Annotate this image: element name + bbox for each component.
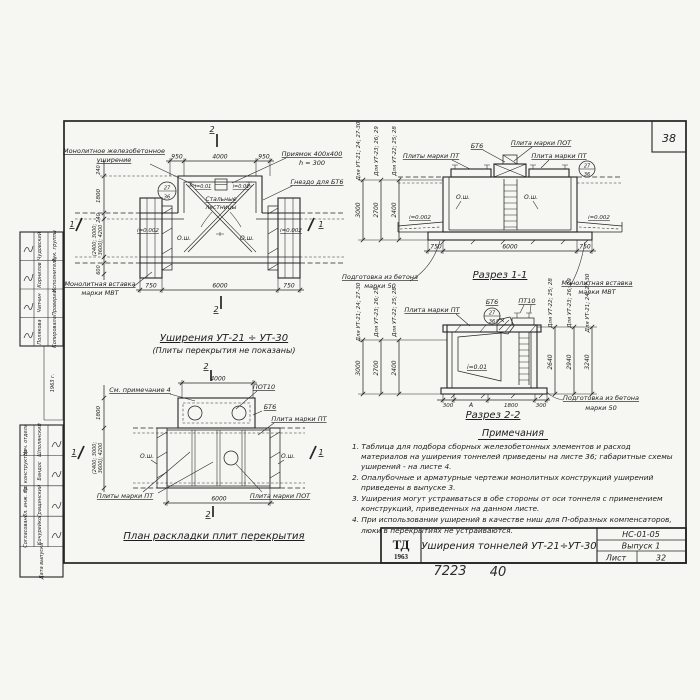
signature <box>52 502 61 508</box>
dim-line-value: 2400 <box>391 202 398 217</box>
dim-line-label: Для УТ-21; 24; 27-30 <box>356 282 362 342</box>
dim-line-label: Для УТ-23; 26; 29 <box>567 278 573 329</box>
axis-label: О.ш. <box>177 235 191 242</box>
dim-line-label: Для УТ-21; 24; 27-30 <box>585 273 591 333</box>
axis-label: О.ш. <box>281 453 295 460</box>
dim-line-label: Для УТ-23; 26; 29 <box>374 287 380 338</box>
dim: 750 <box>145 283 157 290</box>
dim: 4000 <box>212 154 227 161</box>
slope-label: i=0.002 <box>280 228 302 234</box>
sidebar-name: Чапчин <box>37 293 43 313</box>
dim-line-value: 2940 <box>566 354 573 369</box>
label-bt6: БТ6 <box>486 298 499 306</box>
signature <box>24 246 33 252</box>
dim-line-value: 2640 <box>547 354 554 369</box>
label-see-note: См. примечание 4 <box>109 386 171 394</box>
label-monolithic-widening: уширение <box>96 156 132 164</box>
drawing-title: Уширения тоннелей УТ-21÷УТ-30 <box>421 541 596 552</box>
notes-block: Примечания 1. Таблица для подбора сборны… <box>352 428 674 537</box>
label-concrete-prep: Подготовка из бетона <box>563 394 639 402</box>
section-mark-1: 1 <box>69 220 74 229</box>
section-1-1: 27 36 Плиты марки ПТ БТ6 Плита марки ПОТ… <box>342 121 633 296</box>
axis-label: О.ш. <box>524 194 538 201</box>
slab-plan-title: План раскладки плит перекрытия <box>123 531 304 542</box>
dim-line-label: Для УТ-23; 26; 29 <box>374 126 380 177</box>
dim-line-value: 3000 <box>355 360 362 375</box>
label-bt6: БТ6 <box>264 403 277 411</box>
org-logo: ТД <box>393 537 410 552</box>
dim: 3600); 4200 <box>98 225 104 256</box>
signature <box>52 471 61 477</box>
slope-label: i=0.002 <box>409 215 431 221</box>
detail-ref-sheet: 36 <box>164 195 170 201</box>
inventory-number: 7223 <box>433 564 466 579</box>
label-monolithic-widening: Монолитное железобетонное <box>63 147 165 155</box>
note-item: 4. При использовании уширений в качестве… <box>352 515 674 535</box>
detail-ref-sheet: 36 <box>489 319 495 325</box>
plan-widening: i=0.01 i=0.01 <box>63 125 345 355</box>
axis-label: О.ш. <box>456 194 470 201</box>
dim: 300 <box>536 403 547 409</box>
sidebar-role: Рук. группы <box>52 230 58 261</box>
slab-layout-plan: 2 4000 О.ш. О.ш. 1 <box>71 362 327 542</box>
label-pit: Приямок 400х400 <box>282 150 343 158</box>
dim: 750 <box>579 244 591 251</box>
label-concrete-prep: Подготовка из бетона <box>342 273 418 281</box>
pit-slope-left: i=0.01 <box>195 184 212 190</box>
label-monolithic-insert: марки МВТ <box>81 289 119 297</box>
notes-header: Примечания <box>352 428 674 439</box>
sidebar-name: Гращинский <box>37 484 43 517</box>
sidebar-role: Проверил <box>52 289 58 315</box>
dim-line-value: 2700 <box>373 360 380 375</box>
dim: 6000 <box>502 244 517 251</box>
dim: 3600); 4200 <box>98 443 104 474</box>
dim: 600 <box>96 265 102 275</box>
label-pit: h = 300 <box>299 159 325 167</box>
plan-title: Уширения УТ-21 ÷ УТ-30 <box>160 333 288 344</box>
sidebar-name: Чудовский <box>37 231 43 260</box>
signature <box>24 303 33 310</box>
dim: 750 <box>430 244 442 251</box>
slope-label: i=0.002 <box>137 228 159 234</box>
section-mark-2: 2 <box>209 125 214 134</box>
dim-line-value: 3000 <box>355 202 362 217</box>
slope-label: i=0.002 <box>588 215 610 221</box>
label-pot10: ПОТ10 <box>253 383 275 391</box>
page-number: 38 <box>662 132 676 145</box>
section-mark-1: 1 <box>318 220 323 229</box>
plan-subtitle: (Плиты перекрытия не показаны) <box>153 346 296 355</box>
doc-issue: Выпуск 1 <box>622 542 661 551</box>
label-pt-plate: Плита марки ПТ <box>531 152 587 160</box>
sidebar-signature-tables: Рук. группы Исполнитель Проверил Копиров… <box>20 230 63 580</box>
detail-ref-number: 27 <box>584 164 591 170</box>
sidebar-name: Полякова <box>37 319 43 344</box>
section-mark-2: 2 <box>213 305 218 314</box>
dim-line-label: Для УТ-22; 25; 28 <box>392 287 398 338</box>
signature <box>52 532 61 538</box>
slope-label: i=0.01 <box>467 364 487 371</box>
dim: 6000 <box>211 496 226 503</box>
dim-line-label: Для УТ-22; 25; 28 <box>392 126 398 177</box>
section-mark-1: 1 <box>318 448 323 457</box>
signature <box>52 441 61 447</box>
label-pt10: ПТ10 <box>518 297 535 305</box>
sidebar-role: Копировала <box>52 316 58 348</box>
sidebar-name: Корнилов <box>37 262 43 288</box>
dim: 300 <box>443 403 454 409</box>
detail-ref-number: 27 <box>489 311 496 317</box>
label-pt-plates: Плиты марки ПТ <box>97 492 154 500</box>
sidebar-role: Согласовано <box>23 514 29 548</box>
section-title: Разрез 2-2 <box>466 410 521 421</box>
sheet-number: 32 <box>656 554 666 563</box>
dim-line-value: 3240 <box>584 354 591 369</box>
label-pt-plate: Плита марки ПТ <box>404 306 460 314</box>
signature <box>24 274 33 281</box>
signature <box>24 332 33 338</box>
dim: А <box>468 402 473 409</box>
section-mark-2: 2 <box>203 362 208 371</box>
dim: 240 <box>96 213 102 223</box>
axis-label: О.ш. <box>240 235 254 242</box>
sidebar-name: Шполянский <box>37 423 43 457</box>
dim: 950 <box>171 154 183 161</box>
dim: 1800 <box>96 189 102 203</box>
sidebar-year: 1963 г. <box>50 374 56 393</box>
page-number-handwritten: 40 <box>490 565 507 580</box>
detail-ref-number: 27 <box>164 186 171 192</box>
dim-line-value: 2400 <box>391 360 398 375</box>
dim: 240 <box>96 165 102 175</box>
label-pt-plate: Плита марки ПТ <box>271 415 327 423</box>
sidebar-name: Кочурейко <box>37 517 43 545</box>
sidebar-role: Гл. инж. пр. <box>23 485 29 516</box>
label-steel-ladders: лестницы <box>205 204 237 211</box>
label-pot-plate: Плита марки ПОТ <box>250 492 311 500</box>
note-item: 3. Уширения могут устраиваться в обе сто… <box>352 494 674 514</box>
label-socket-bt6: Гнездо для БТ6 <box>290 178 343 186</box>
section-mark-2: 2 <box>205 510 210 519</box>
detail-ref-sheet: 36 <box>584 172 590 178</box>
dim-line-label: Для УТ-21; 24; 27-30 <box>356 121 362 181</box>
drawing-sheet: 38 Рук. группы Исполнитель Проверил Копи… <box>0 0 700 700</box>
note-item: 1. Таблица для подбора сборных железобет… <box>352 442 674 472</box>
label-concrete-prep: марки 50 <box>585 404 617 412</box>
dim: 4000 <box>210 376 225 383</box>
label-monolithic-insert: Монолитная вставка <box>64 280 135 288</box>
label-steel-ladders: Стальные <box>205 196 236 203</box>
dim: 950 <box>258 154 270 161</box>
dim: 6000 <box>212 283 227 290</box>
label-pt-plates: Плиты марки ПТ <box>403 152 460 160</box>
axis-label: О.ш. <box>140 453 154 460</box>
label-pot-plate: Плита марки ПОТ <box>511 139 572 147</box>
section-title: Разрез 1-1 <box>473 270 528 281</box>
dim: 1800 <box>96 406 102 420</box>
dim: 1800 <box>504 403 518 409</box>
sheet-label: Лист <box>605 554 627 563</box>
dim: 750 <box>283 283 295 290</box>
label-bt6: БТ6 <box>471 142 484 150</box>
dim-line-value: 2700 <box>373 202 380 217</box>
org-logo-year: 1963 <box>394 553 409 561</box>
note-item: 2. Опалубочные и арматурные чертежи моно… <box>352 473 674 493</box>
section-mark-1: 1 <box>71 448 76 457</box>
sidebar-footer: Дата выпуска <box>39 543 45 581</box>
dim-line-label: Для УТ-22; 25; 28 <box>548 278 554 329</box>
sidebar-name: Бандос <box>37 461 43 480</box>
sidebar-role: Исполнитель <box>52 258 58 293</box>
